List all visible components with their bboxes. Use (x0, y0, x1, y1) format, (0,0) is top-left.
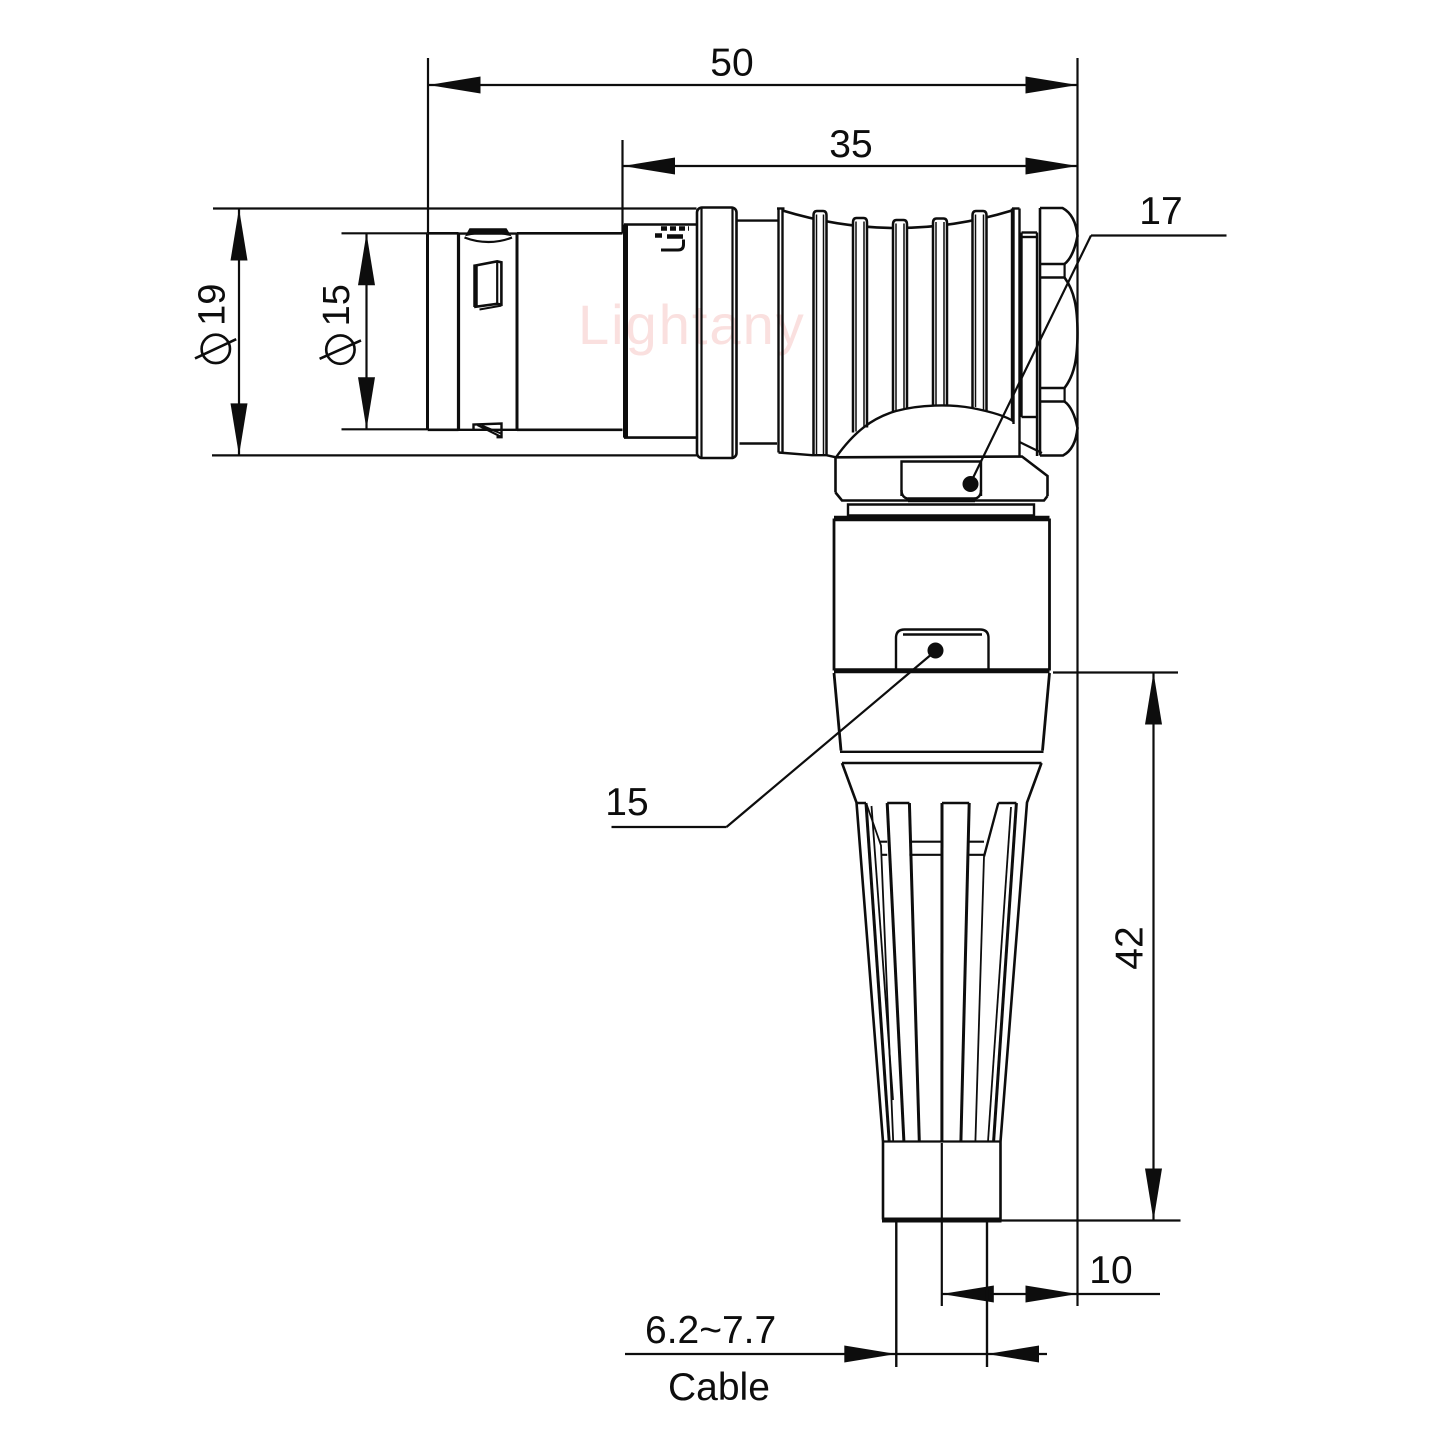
svg-text:50: 50 (710, 42, 753, 85)
svg-text:17: 17 (1139, 190, 1182, 233)
svg-text:19: 19 (192, 284, 234, 326)
svg-text:10: 10 (1089, 1249, 1132, 1292)
svg-text:15: 15 (605, 781, 648, 824)
svg-text:Cable: Cable (668, 1366, 770, 1409)
svg-text:42: 42 (1109, 926, 1152, 969)
svg-text:15: 15 (316, 284, 358, 326)
svg-text:6.2~7.7: 6.2~7.7 (645, 1309, 776, 1352)
svg-text:35: 35 (829, 123, 872, 166)
svg-text:Lightany: Lightany (578, 293, 806, 356)
